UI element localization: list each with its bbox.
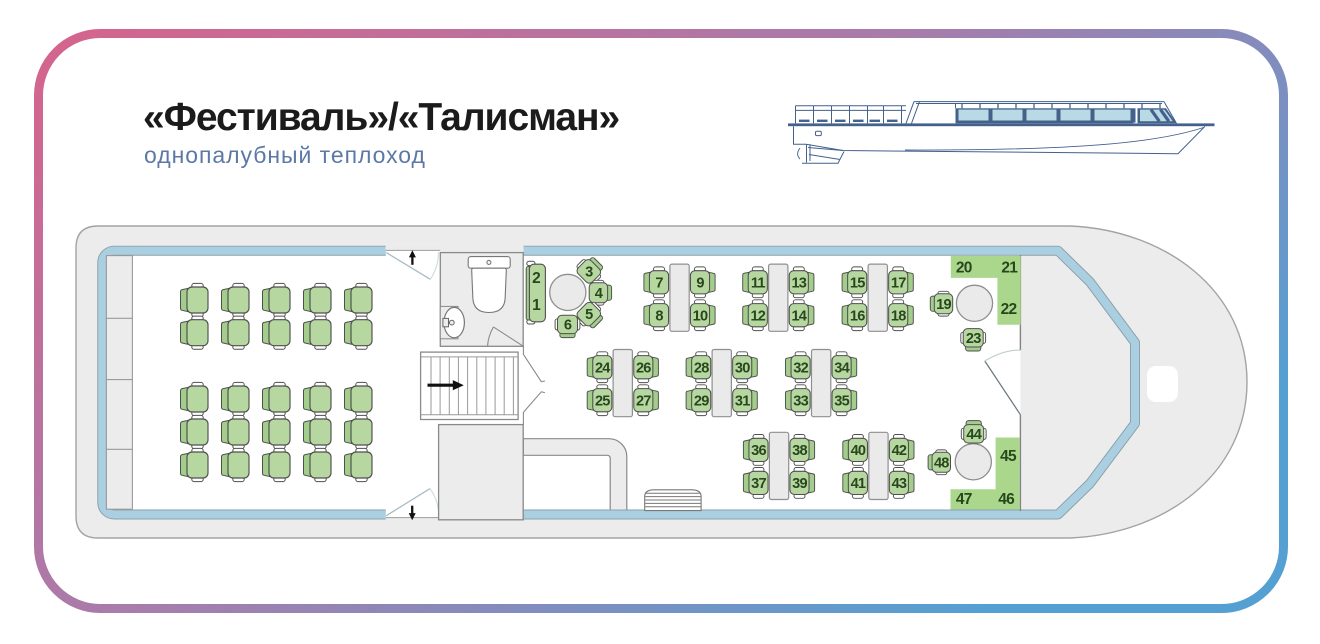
svg-text:7: 7 bbox=[655, 275, 663, 291]
svg-text:3: 3 bbox=[585, 265, 593, 281]
svg-text:40: 40 bbox=[851, 443, 866, 459]
svg-text:27: 27 bbox=[636, 393, 651, 409]
svg-text:5: 5 bbox=[585, 307, 593, 323]
svg-text:33: 33 bbox=[793, 393, 808, 409]
svg-text:11: 11 bbox=[751, 275, 766, 291]
svg-text:36: 36 bbox=[751, 443, 766, 459]
svg-text:9: 9 bbox=[696, 275, 704, 291]
svg-text:41: 41 bbox=[851, 476, 866, 492]
svg-text:43: 43 bbox=[892, 476, 907, 492]
svg-text:23: 23 bbox=[966, 331, 981, 347]
svg-text:12: 12 bbox=[750, 308, 765, 324]
svg-text:16: 16 bbox=[850, 308, 865, 324]
svg-text:1: 1 bbox=[532, 297, 541, 314]
svg-text:46: 46 bbox=[998, 491, 1015, 508]
svg-text:45: 45 bbox=[1000, 448, 1017, 465]
svg-text:6: 6 bbox=[564, 318, 572, 334]
svg-text:30: 30 bbox=[735, 360, 750, 376]
svg-text:20: 20 bbox=[956, 259, 972, 276]
svg-text:26: 26 bbox=[636, 360, 651, 376]
svg-text:2: 2 bbox=[532, 270, 541, 287]
svg-text:31: 31 bbox=[735, 393, 750, 409]
svg-text:13: 13 bbox=[791, 275, 806, 291]
svg-text:34: 34 bbox=[834, 360, 850, 376]
svg-text:«Фестиваль»/«Талисман»: «Фестиваль»/«Талисман» bbox=[143, 96, 619, 139]
svg-text:47: 47 bbox=[956, 491, 972, 508]
svg-text:29: 29 bbox=[694, 393, 709, 409]
svg-text:22: 22 bbox=[1001, 301, 1017, 318]
svg-text:42: 42 bbox=[892, 443, 907, 459]
svg-text:8: 8 bbox=[655, 308, 663, 324]
svg-text:28: 28 bbox=[694, 360, 709, 376]
svg-text:17: 17 bbox=[891, 275, 906, 291]
svg-text:25: 25 bbox=[595, 393, 610, 409]
svg-text:32: 32 bbox=[793, 360, 808, 376]
svg-text:35: 35 bbox=[834, 393, 849, 409]
svg-text:10: 10 bbox=[693, 308, 708, 324]
svg-text:44: 44 bbox=[966, 427, 982, 443]
svg-text:38: 38 bbox=[792, 443, 807, 459]
svg-text:однопалубный теплоход: однопалубный теплоход bbox=[144, 142, 426, 168]
svg-text:24: 24 bbox=[595, 360, 611, 376]
svg-text:18: 18 bbox=[891, 308, 906, 324]
svg-text:14: 14 bbox=[791, 308, 807, 324]
svg-text:39: 39 bbox=[792, 476, 807, 492]
svg-text:37: 37 bbox=[751, 476, 766, 492]
svg-text:15: 15 bbox=[850, 275, 865, 291]
svg-text:21: 21 bbox=[1001, 259, 1018, 276]
svg-text:48: 48 bbox=[934, 455, 949, 471]
svg-text:19: 19 bbox=[936, 297, 951, 313]
